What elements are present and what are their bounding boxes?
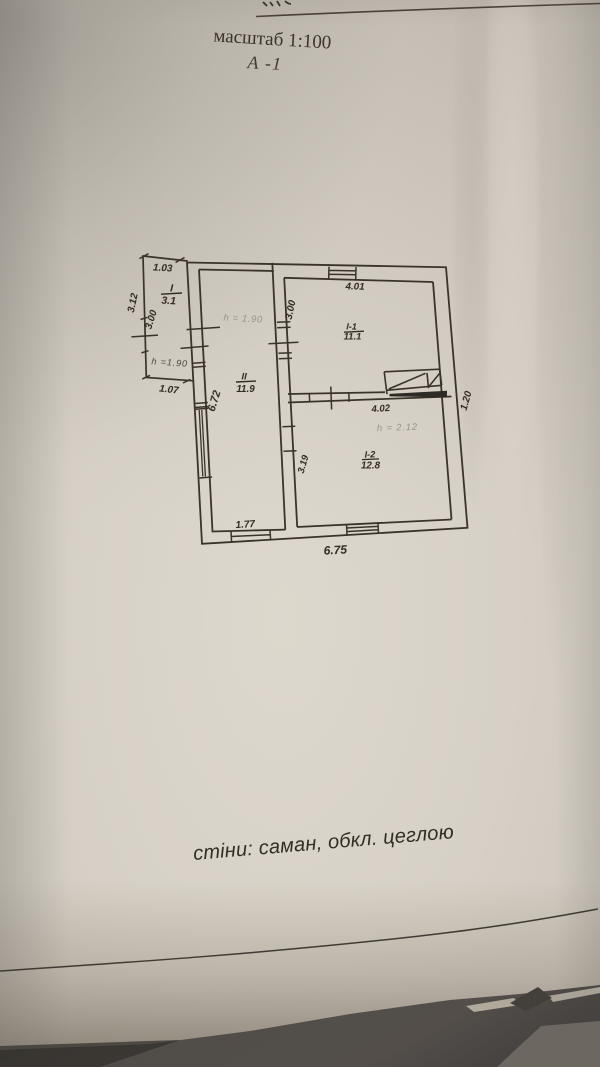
svg-text:11.1: 11.1 [344,332,362,343]
svg-text:h = 1.90: h = 1.90 [223,312,263,325]
svg-text:4.02: 4.02 [370,403,391,415]
svg-text:4.01: 4.01 [344,281,364,292]
svg-text:1.03: 1.03 [153,262,174,274]
svg-text:6.75: 6.75 [323,542,347,557]
svg-text:h = 2.12: h = 2.12 [377,422,418,434]
svg-text:А -1: А -1 [246,52,282,74]
svg-text:I-1: I-1 [346,321,357,331]
svg-text:1.77: 1.77 [235,519,256,531]
svg-text:11.9: 11.9 [236,384,255,395]
svg-text:12.8: 12.8 [361,461,381,472]
svg-text:3.1: 3.1 [161,295,176,308]
svg-text:I-2: I-2 [364,449,376,459]
